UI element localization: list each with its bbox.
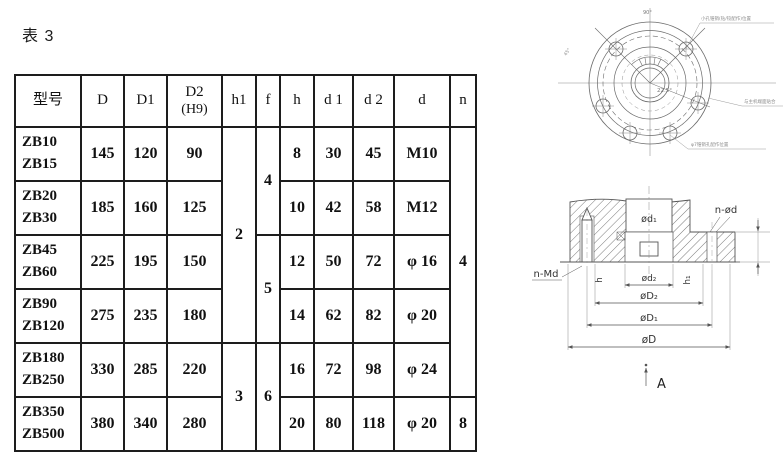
spec-table: 型号DD1D2(H9)h1fhd 1d 2dnZB10ZB15145120902… bbox=[14, 74, 477, 452]
col-header-h1: h1 bbox=[222, 75, 256, 127]
cell-d: φ 20 bbox=[394, 397, 450, 451]
col-header-d2: d 2 bbox=[353, 75, 394, 127]
label-D1: øD₁ bbox=[640, 313, 658, 324]
cell-d: M10 bbox=[394, 127, 450, 181]
cell-model: ZB45ZB60 bbox=[15, 235, 81, 289]
cell-model: ZB10ZB15 bbox=[15, 127, 81, 181]
cell-D: 330 bbox=[81, 343, 124, 397]
cell-d: φ 24 bbox=[394, 343, 450, 397]
col-header-D2: D2(H9) bbox=[167, 75, 222, 127]
flange-section-view: ød₁ n-ød n-Md h h₁ ød₂ øD₂ øD₁ øD A bbox=[530, 180, 784, 395]
cell-f: 6 bbox=[256, 343, 280, 451]
label-d2: ød₂ bbox=[642, 274, 657, 284]
cell-d1: 42 bbox=[314, 181, 353, 235]
cell-d: φ 20 bbox=[394, 289, 450, 343]
cell-D1: 120 bbox=[124, 127, 167, 181]
cell-h1: 3 bbox=[222, 343, 256, 451]
label-n-od: n-ød bbox=[715, 205, 737, 216]
angle-label-45: 45° bbox=[563, 47, 572, 57]
cell-n: 4 bbox=[450, 127, 476, 397]
annotation-small-text: 与主机端面贴合 bbox=[744, 98, 776, 105]
cell-D: 145 bbox=[81, 127, 124, 181]
cell-D: 225 bbox=[81, 235, 124, 289]
document-page: 表 3 型号DD1D2(H9)h1fhd 1d 2dnZB10ZB1514512… bbox=[0, 0, 784, 459]
cell-f: 4 bbox=[256, 127, 280, 235]
label-D: øD bbox=[642, 334, 657, 346]
col-header-f: f bbox=[256, 75, 280, 127]
col-header-D1: D1 bbox=[124, 75, 167, 127]
cell-D2: 90 bbox=[167, 127, 222, 181]
cell-d: φ 16 bbox=[394, 235, 450, 289]
cell-h: 12 bbox=[280, 235, 314, 289]
angle-label-90: 90° bbox=[643, 10, 652, 16]
cell-h1: 2 bbox=[222, 127, 256, 343]
cell-d2: 82 bbox=[353, 289, 394, 343]
page-title: 表 3 bbox=[22, 22, 54, 46]
cell-h: 16 bbox=[280, 343, 314, 397]
label-h: h bbox=[595, 277, 605, 283]
cell-f: 5 bbox=[256, 235, 280, 343]
cell-d1: 80 bbox=[314, 397, 353, 451]
cell-d2: 72 bbox=[353, 235, 394, 289]
label-n-md: n-Md bbox=[534, 269, 559, 280]
annotation-small-text: φ7锥销孔配作位置 bbox=[691, 141, 729, 148]
col-header-model: 型号 bbox=[15, 75, 81, 127]
cell-d1: 62 bbox=[314, 289, 353, 343]
cell-D1: 285 bbox=[124, 343, 167, 397]
cell-h: 20 bbox=[280, 397, 314, 451]
cell-D1: 195 bbox=[124, 235, 167, 289]
cell-h: 14 bbox=[280, 289, 314, 343]
angle-label-22-5: 22.5° bbox=[657, 88, 672, 94]
cell-D1: 340 bbox=[124, 397, 167, 451]
cell-D1: 160 bbox=[124, 181, 167, 235]
col-header-D: D bbox=[81, 75, 124, 127]
col-header-d: d bbox=[394, 75, 450, 127]
cell-n: 8 bbox=[450, 397, 476, 451]
label-view-A: A bbox=[657, 377, 666, 392]
col-header-n: n bbox=[450, 75, 476, 127]
cell-D1: 235 bbox=[124, 289, 167, 343]
cell-D2: 280 bbox=[167, 397, 222, 451]
cell-model: ZB90ZB120 bbox=[15, 289, 81, 343]
label-D2: øD₂ bbox=[640, 291, 658, 302]
cell-D2: 150 bbox=[167, 235, 222, 289]
leader-line bbox=[686, 23, 774, 49]
cell-model: ZB180ZB250 bbox=[15, 343, 81, 397]
cell-D: 275 bbox=[81, 289, 124, 343]
col-header-d1: d 1 bbox=[314, 75, 353, 127]
cell-d2: 118 bbox=[353, 397, 394, 451]
cell-d2: 98 bbox=[353, 343, 394, 397]
cell-D: 185 bbox=[81, 181, 124, 235]
cell-D: 380 bbox=[81, 397, 124, 451]
flange-top-view: 小孔锥销(钻/铰配作)位置 与主机端面贴合 φ7锥销孔配作位置 90° 22.5… bbox=[540, 2, 784, 160]
cell-h: 10 bbox=[280, 181, 314, 235]
cell-d1: 50 bbox=[314, 235, 353, 289]
cell-D2: 220 bbox=[167, 343, 222, 397]
cell-d1: 30 bbox=[314, 127, 353, 181]
cell-d2: 45 bbox=[353, 127, 394, 181]
label-h1: h₁ bbox=[683, 275, 693, 285]
cell-d2: 58 bbox=[353, 181, 394, 235]
annotation-small-text: 小孔锥销(钻/铰配作)位置 bbox=[701, 15, 752, 22]
cell-model: ZB350ZB500 bbox=[15, 397, 81, 451]
col-header-h: h bbox=[280, 75, 314, 127]
cell-D2: 125 bbox=[167, 181, 222, 235]
cell-h: 8 bbox=[280, 127, 314, 181]
cell-D2: 180 bbox=[167, 289, 222, 343]
cell-d: M12 bbox=[394, 181, 450, 235]
cell-model: ZB20ZB30 bbox=[15, 181, 81, 235]
cell-d1: 72 bbox=[314, 343, 353, 397]
label-d1: ød₁ bbox=[641, 214, 657, 225]
